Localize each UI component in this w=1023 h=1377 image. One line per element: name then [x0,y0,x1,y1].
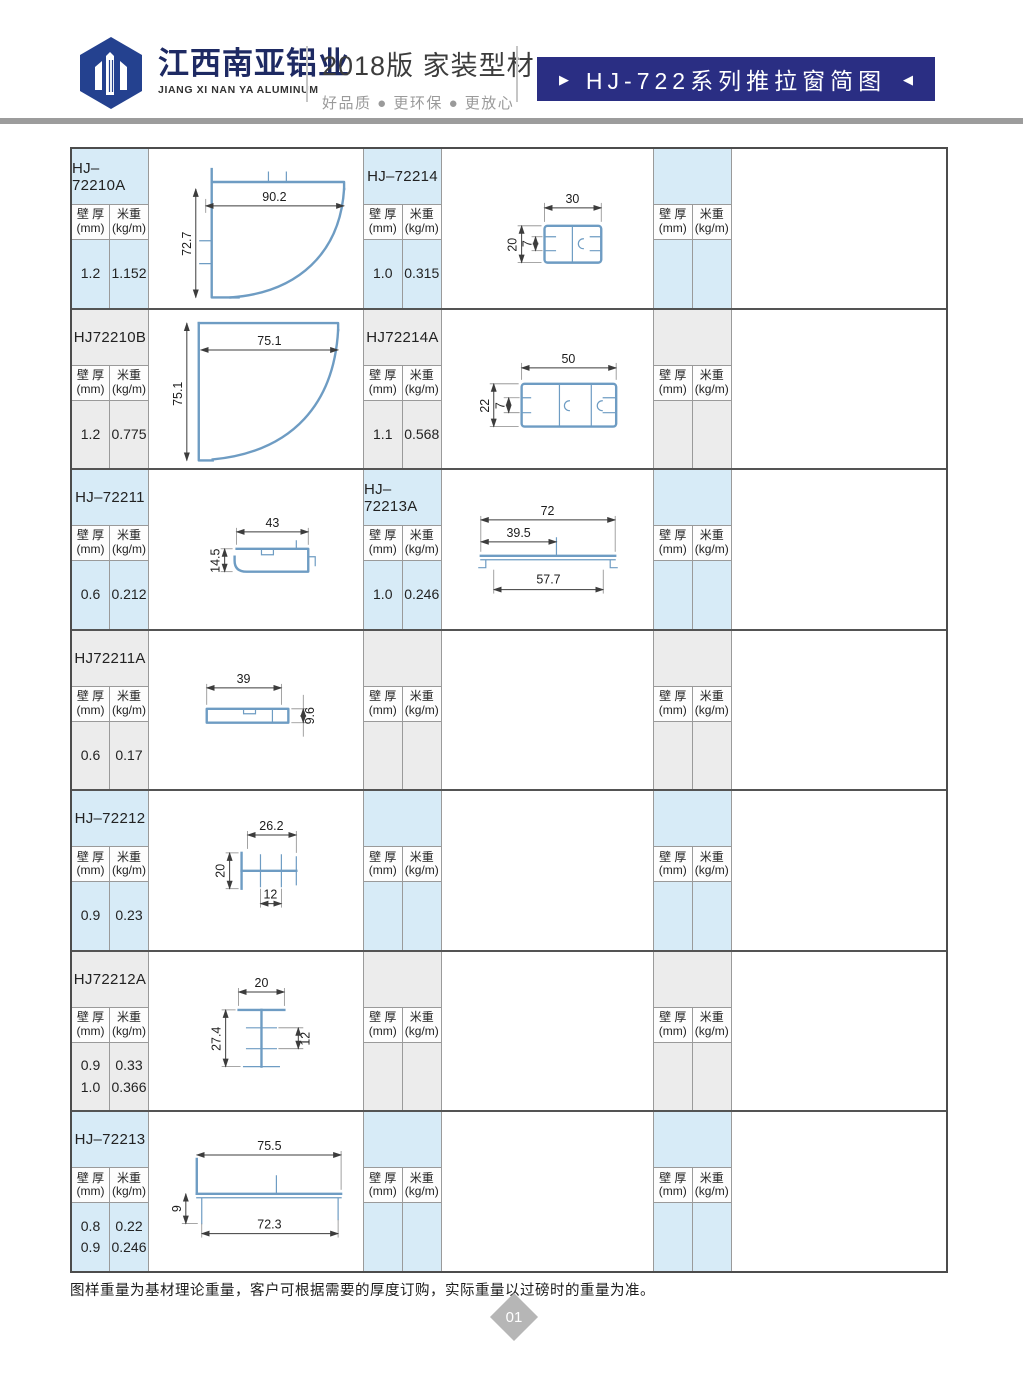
header-divider [306,46,308,102]
wall-thickness-header: 壁 厚(mm) [72,1008,110,1042]
wall-thickness-value: 0.9 1.0 [72,1043,110,1111]
wall-thickness-header: 壁 厚(mm) [364,1168,403,1202]
profile-drawing-hj72214: 30 20 7 [442,149,654,308]
wall-thickness-header: 壁 厚(mm) [72,366,110,400]
model-name [364,1112,441,1168]
series-banner: ▶ HJ-722系列推拉窗简图 ◀ [537,57,935,101]
spec-block-middle: 壁 厚(mm)米重(kg/m) [364,952,442,1111]
svg-text:30: 30 [565,192,579,206]
table-row: HJ72211A 壁 厚(mm)米重(kg/m) 0.60.17 39 9.6 [72,631,946,792]
spec-block-left: HJ72211A 壁 厚(mm)米重(kg/m) 0.60.17 [72,631,149,790]
wall-thickness-header: 壁 厚(mm) [72,205,110,239]
model-name: HJ72214A [364,310,441,366]
meter-weight-value: 0.212 [110,561,148,629]
wall-thickness-value: 0.6 [72,722,110,790]
spec-block-middle: HJ–72214 壁 厚(mm)米重(kg/m) 1.00.315 [364,149,442,308]
wall-thickness-header: 壁 厚(mm) [654,366,693,400]
wall-thickness-value [654,1043,693,1111]
svg-text:72.3: 72.3 [257,1218,281,1232]
header-divider [516,46,518,102]
wall-thickness-value [654,240,693,308]
meter-weight-value [693,1203,732,1271]
svg-text:39: 39 [237,672,251,686]
meter-weight-header: 米重(kg/m) [403,1168,442,1202]
company-logo-icon [76,34,146,110]
wall-thickness-value [364,1203,403,1271]
model-name [654,791,731,847]
edition-title: 2018版 家装型材 [322,44,535,83]
profile-drawing-hj72211: 43 14.5 [149,470,364,629]
svg-text:39.5: 39.5 [507,526,531,540]
spec-block-middle: HJ–72213A 壁 厚(mm)米重(kg/m) 1.00.246 [364,470,442,629]
catalog-page: 江西南亚铝业 JIANG XI NAN YA ALUMINUM 2018版 家装… [0,0,1023,1377]
empty-drawing-area [442,1112,654,1271]
profile-drawing-hj72214a: 50 22 7 [442,310,654,469]
empty-drawing-area [732,470,946,629]
wall-thickness-header: 壁 厚(mm) [654,1168,693,1202]
profile-drawing-hj72212a: 20 27.4 12 [149,952,364,1111]
svg-text:14.5: 14.5 [209,549,223,573]
profile-drawing-hj72213a: 72 39.5 57.7 [442,470,654,629]
profile-drawing-hj72212: 26.2 20 12 [149,791,364,950]
meter-weight-value: 1.152 [110,240,148,308]
spec-block-left: HJ72210B 壁 厚(mm)米重(kg/m) 1.20.775 [72,310,149,469]
wall-thickness-value [654,1203,693,1271]
meter-weight-value [403,882,442,950]
model-name: HJ72212A [72,952,148,1008]
wall-thickness-header: 壁 厚(mm) [364,1008,403,1042]
wall-thickness-value [364,722,403,790]
wall-thickness-header: 壁 厚(mm) [654,526,693,560]
model-name: HJ–72213A [364,470,441,526]
wall-thickness-header: 壁 厚(mm) [364,205,403,239]
series-banner-title: HJ-722系列推拉窗简图 [586,62,886,96]
table-row: HJ–72210A 壁 厚(mm)米重(kg/m) 1.21.152 90.2 … [72,149,946,310]
meter-weight-value: 0.568 [403,401,442,469]
profile-drawing-hj72210a: 90.2 72.7 [149,149,364,308]
wall-thickness-value: 1.1 [364,401,403,469]
wall-thickness-header: 壁 厚(mm) [72,1168,110,1202]
spec-block-left: HJ–72213 壁 厚(mm)米重(kg/m) 0.8 0.90.22 0.2… [72,1112,149,1271]
spec-block-right: 壁 厚(mm)米重(kg/m) [654,470,732,629]
header-divider-bar [0,118,1023,124]
wall-thickness-value: 1.0 [364,561,403,629]
meter-weight-value [403,722,442,790]
wall-thickness-header: 壁 厚(mm) [364,687,403,721]
empty-drawing-area [442,791,654,950]
wall-thickness-value: 0.8 0.9 [72,1203,110,1271]
wall-thickness-header: 壁 厚(mm) [654,1008,693,1042]
wall-thickness-value [364,1043,403,1111]
wall-thickness-header: 壁 厚(mm) [654,847,693,881]
meter-weight-header: 米重(kg/m) [110,526,148,560]
spec-block-left: HJ–72210A 壁 厚(mm)米重(kg/m) 1.21.152 [72,149,149,308]
wall-thickness-header: 壁 厚(mm) [72,847,110,881]
spec-block-left: HJ72212A 壁 厚(mm)米重(kg/m) 0.9 1.00.33 0.3… [72,952,149,1111]
wall-thickness-value: 0.9 [72,882,110,950]
table-row: HJ72210B 壁 厚(mm)米重(kg/m) 1.20.775 75.1 7… [72,310,946,471]
svg-text:7: 7 [494,402,508,409]
wall-thickness-value: 1.2 [72,401,110,469]
empty-drawing-area [732,952,946,1111]
wall-thickness-header: 壁 厚(mm) [364,526,403,560]
meter-weight-header: 米重(kg/m) [693,687,732,721]
svg-text:57.7: 57.7 [536,573,560,587]
empty-drawing-area [732,791,946,950]
meter-weight-header: 米重(kg/m) [693,1008,732,1042]
model-name [364,952,441,1008]
wall-thickness-header: 壁 厚(mm) [364,847,403,881]
spec-block-right: 壁 厚(mm)米重(kg/m) [654,952,732,1111]
wall-thickness-value [654,401,693,469]
empty-drawing-area [442,952,654,1111]
spec-block-left: HJ–72211 壁 厚(mm)米重(kg/m) 0.60.212 [72,470,149,629]
table-row: HJ–72212 壁 厚(mm)米重(kg/m) 0.90.23 26.2 20 [72,791,946,952]
meter-weight-value [693,240,732,308]
meter-weight-value [693,561,732,629]
wall-thickness-header: 壁 厚(mm) [72,526,110,560]
wall-thickness-value: 1.2 [72,240,110,308]
empty-drawing-area [442,631,654,790]
meter-weight-header: 米重(kg/m) [693,366,732,400]
wall-thickness-value [654,722,693,790]
footer-note: 图样重量为基材理论重量，客户可根据需要的厚度订购，实际重量以过磅时的重量为准。 [70,1279,655,1300]
empty-drawing-area [732,1112,946,1271]
spec-block-right: 壁 厚(mm)米重(kg/m) [654,791,732,950]
meter-weight-header: 米重(kg/m) [693,1168,732,1202]
banner-left-arrow-icon: ▶ [559,73,569,86]
edition-block: 2018版 家装型材 好品质 ● 更环保 ● 更放心 [322,44,535,113]
meter-weight-header: 米重(kg/m) [110,366,148,400]
meter-weight-value: 0.22 0.246 [110,1203,148,1271]
svg-text:7: 7 [521,240,535,247]
spec-block-middle: 壁 厚(mm)米重(kg/m) [364,791,442,950]
model-name: HJ–72214 [364,149,441,205]
wall-thickness-value: 0.6 [72,561,110,629]
wall-thickness-value: 1.0 [364,240,403,308]
spec-block-right: 壁 厚(mm)米重(kg/m) [654,631,732,790]
svg-text:75.1: 75.1 [171,381,185,405]
meter-weight-header: 米重(kg/m) [403,687,442,721]
model-name [654,952,731,1008]
svg-text:43: 43 [266,516,280,530]
meter-weight-header: 米重(kg/m) [403,1008,442,1042]
meter-weight-header: 米重(kg/m) [403,366,442,400]
profile-drawing-hj72210b: 75.1 75.1 [149,310,364,469]
empty-drawing-area [732,149,946,308]
edition-tagline: 好品质 ● 更环保 ● 更放心 [322,92,535,113]
spec-block-middle: 壁 厚(mm)米重(kg/m) [364,631,442,790]
spec-block-right: 壁 厚(mm)米重(kg/m) [654,1112,732,1271]
meter-weight-value [403,1203,442,1271]
company-logo: 江西南亚铝业 JIANG XI NAN YA ALUMINUM [76,34,350,110]
wall-thickness-header: 壁 厚(mm) [654,687,693,721]
svg-text:20: 20 [506,238,520,252]
model-name: HJ–72212 [72,791,148,847]
meter-weight-value: 0.246 [403,561,442,629]
spec-block-right: 壁 厚(mm)米重(kg/m) [654,149,732,308]
svg-text:27.4: 27.4 [210,1026,224,1050]
model-name: HJ72210B [72,310,148,366]
page-number: 01 [497,1309,531,1326]
meter-weight-value: 0.33 0.366 [110,1043,148,1111]
meter-weight-value [693,882,732,950]
empty-drawing-area [732,631,946,790]
meter-weight-header: 米重(kg/m) [403,526,442,560]
meter-weight-value [693,401,732,469]
svg-text:12: 12 [298,1032,312,1046]
model-name [654,631,731,687]
svg-text:75.5: 75.5 [257,1139,281,1153]
wall-thickness-value [654,882,693,950]
wall-thickness-header: 壁 厚(mm) [654,205,693,239]
table-row: HJ72212A 壁 厚(mm)米重(kg/m) 0.9 1.00.33 0.3… [72,952,946,1113]
svg-text:12: 12 [264,888,278,902]
meter-weight-value: 0.23 [110,882,148,950]
model-name [654,310,731,366]
spec-block-middle: HJ72214A 壁 厚(mm)米重(kg/m) 1.10.568 [364,310,442,469]
meter-weight-value [693,722,732,790]
meter-weight-value [403,1043,442,1111]
empty-drawing-area [732,310,946,469]
spec-block-middle: 壁 厚(mm)米重(kg/m) [364,1112,442,1271]
meter-weight-header: 米重(kg/m) [693,526,732,560]
model-name [654,470,731,526]
spec-block-left: HJ–72212 壁 厚(mm)米重(kg/m) 0.90.23 [72,791,149,950]
model-name: HJ72211A [72,631,148,687]
svg-text:20: 20 [255,976,269,990]
model-name: HJ–72213 [72,1112,148,1168]
svg-text:26.2: 26.2 [259,819,283,833]
meter-weight-header: 米重(kg/m) [403,847,442,881]
table-row: HJ–72211 壁 厚(mm)米重(kg/m) 0.60.212 43 14.… [72,470,946,631]
model-name: HJ–72210A [72,149,148,205]
svg-text:90.2: 90.2 [262,190,286,204]
model-name [654,149,731,205]
model-name [364,791,441,847]
profile-drawing-hj72211a: 39 9.6 [149,631,364,790]
profile-drawing-hj72213: 75.5 9 72.3 [149,1112,364,1271]
svg-text:20: 20 [214,864,228,878]
banner-right-arrow-icon: ◀ [903,73,913,86]
model-name: HJ–72211 [72,470,148,526]
meter-weight-header: 米重(kg/m) [110,687,148,721]
wall-thickness-header: 壁 厚(mm) [364,366,403,400]
svg-text:72.7: 72.7 [180,232,194,256]
meter-weight-header: 米重(kg/m) [110,847,148,881]
model-name [364,631,441,687]
model-name [654,1112,731,1168]
wall-thickness-header: 壁 厚(mm) [72,687,110,721]
profile-table: HJ–72210A 壁 厚(mm)米重(kg/m) 1.21.152 90.2 … [70,147,948,1273]
meter-weight-value: 0.315 [403,240,442,308]
svg-text:22: 22 [478,398,492,412]
meter-weight-header: 米重(kg/m) [693,205,732,239]
meter-weight-header: 米重(kg/m) [110,1008,148,1042]
svg-text:50: 50 [561,351,575,365]
wall-thickness-value [364,882,403,950]
svg-text:75.1: 75.1 [257,334,281,348]
spec-block-right: 壁 厚(mm)米重(kg/m) [654,310,732,469]
table-row: HJ–72213 壁 厚(mm)米重(kg/m) 0.8 0.90.22 0.2… [72,1112,946,1271]
meter-weight-value: 0.17 [110,722,148,790]
wall-thickness-value [654,561,693,629]
meter-weight-value: 0.775 [110,401,148,469]
meter-weight-header: 米重(kg/m) [403,205,442,239]
svg-text:72: 72 [541,504,555,518]
meter-weight-header: 米重(kg/m) [110,205,148,239]
meter-weight-header: 米重(kg/m) [693,847,732,881]
svg-text:9: 9 [170,1206,184,1213]
svg-text:9.6: 9.6 [303,707,317,724]
meter-weight-header: 米重(kg/m) [110,1168,148,1202]
meter-weight-value [693,1043,732,1111]
